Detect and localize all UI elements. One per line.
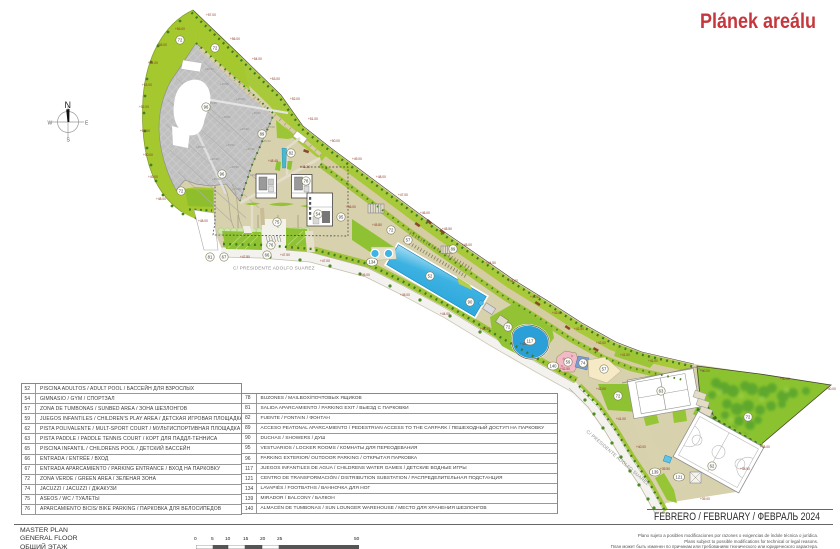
svg-text:67: 67 <box>222 255 227 260</box>
svg-text:63: 63 <box>659 389 664 394</box>
svg-text:+46.00: +46.00 <box>360 273 370 277</box>
svg-text:+41.00: +41.00 <box>616 417 626 421</box>
svg-text:+45.50: +45.50 <box>222 115 231 119</box>
svg-text:134: 134 <box>369 260 377 265</box>
svg-text:S: S <box>67 138 71 144</box>
svg-text:+48.00: +48.00 <box>156 197 166 201</box>
svg-text:+48.20: +48.20 <box>300 165 310 169</box>
svg-text:+45.50: +45.50 <box>220 82 229 86</box>
svg-text:+41.50: +41.50 <box>620 353 630 357</box>
svg-text:+42.50: +42.50 <box>574 327 584 331</box>
svg-text:+44.00: +44.00 <box>440 312 450 316</box>
svg-text:+47.80: +47.80 <box>240 255 250 259</box>
svg-text:+43.50: +43.50 <box>530 295 540 299</box>
svg-text:75: 75 <box>275 220 280 225</box>
svg-text:+51.00: +51.00 <box>308 117 318 121</box>
svg-text:76: 76 <box>269 243 274 248</box>
svg-text:+46.00: +46.00 <box>420 211 430 215</box>
svg-text:+45.50: +45.50 <box>266 125 275 129</box>
svg-text:+48.00: +48.00 <box>198 219 208 223</box>
svg-text:W: W <box>48 121 53 127</box>
svg-text:+53.00: +53.00 <box>142 83 152 87</box>
svg-text:+45.50: +45.50 <box>240 127 249 131</box>
svg-text:+42.00: +42.00 <box>596 341 606 345</box>
svg-text:54: 54 <box>316 212 321 217</box>
svg-text:+49.00: +49.00 <box>148 175 158 179</box>
svg-text:+43.00: +43.00 <box>552 311 562 315</box>
svg-text:59: 59 <box>566 360 571 365</box>
svg-text:+53.00: +53.00 <box>270 77 280 81</box>
svg-text:+42.50: +42.50 <box>560 367 570 371</box>
svg-text:+50.00: +50.00 <box>143 153 153 157</box>
svg-text:57: 57 <box>602 367 607 372</box>
svg-text:117: 117 <box>527 339 534 344</box>
svg-text:72: 72 <box>178 38 183 43</box>
svg-text:N: N <box>65 100 72 110</box>
svg-text:C/ PRESIDENTE ADOLFO SUAREZ: C/ PRESIDENTE ADOLFO SUAREZ <box>233 266 315 271</box>
svg-text:+47.50: +47.50 <box>280 253 290 257</box>
svg-text:95: 95 <box>339 215 344 220</box>
svg-text:66: 66 <box>265 253 270 258</box>
svg-text:96: 96 <box>220 172 225 177</box>
svg-text:+45.50: +45.50 <box>236 97 245 101</box>
svg-text:+39.50: +39.50 <box>660 467 670 471</box>
svg-text:+50.00: +50.00 <box>330 139 340 143</box>
svg-text:81: 81 <box>208 255 213 260</box>
svg-text:72: 72 <box>506 325 511 330</box>
svg-text:57: 57 <box>406 238 411 243</box>
svg-text:+45.50: +45.50 <box>226 143 235 147</box>
svg-text:96: 96 <box>204 105 209 110</box>
svg-text:+41.00: +41.00 <box>648 359 658 363</box>
svg-text:62: 62 <box>710 464 715 469</box>
svg-text:121: 121 <box>676 475 684 480</box>
svg-text:+44.50: +44.50 <box>486 261 496 265</box>
svg-text:+40.00: +40.00 <box>700 369 710 373</box>
svg-text:+39.00: +39.00 <box>700 497 710 501</box>
svg-text:+56.00: +56.00 <box>230 37 240 41</box>
svg-text:+40.00: +40.00 <box>636 445 646 449</box>
svg-text:82: 82 <box>289 151 294 156</box>
svg-text:+44.00: +44.00 <box>508 279 518 283</box>
svg-text:+52.00: +52.00 <box>290 97 300 101</box>
svg-text:+40.00: +40.00 <box>780 377 790 381</box>
svg-text:+42.00: +42.00 <box>596 387 606 391</box>
svg-text:+45.80: +45.80 <box>372 223 382 227</box>
svg-text:72: 72 <box>213 46 218 51</box>
svg-text:52: 52 <box>428 274 433 279</box>
svg-text:+43.50: +43.50 <box>480 327 490 331</box>
svg-text:+38.00: +38.00 <box>760 445 770 449</box>
svg-text:+47.00: +47.00 <box>320 259 330 263</box>
svg-text:+45.00: +45.00 <box>400 293 410 297</box>
svg-text:+45.50: +45.50 <box>210 157 219 161</box>
svg-text:90: 90 <box>468 300 473 305</box>
svg-text:89: 89 <box>451 247 456 252</box>
svg-text:+45.50: +45.50 <box>252 111 261 115</box>
svg-text:+45.00: +45.00 <box>462 243 472 247</box>
svg-text:74: 74 <box>581 361 586 366</box>
svg-text:+45.50: +45.50 <box>246 147 255 151</box>
svg-text:78: 78 <box>304 179 309 184</box>
svg-text:+45.50: +45.50 <box>442 227 452 231</box>
svg-text:72: 72 <box>179 189 184 194</box>
svg-text:+54.00: +54.00 <box>252 57 262 61</box>
svg-text:+49.00: +49.00 <box>352 157 362 161</box>
svg-text:+45.50: +45.50 <box>196 145 205 149</box>
svg-text:+40.00: +40.00 <box>826 387 836 391</box>
svg-text:140: 140 <box>550 364 558 369</box>
svg-text:+51.00: +51.00 <box>140 129 150 133</box>
svg-text:72: 72 <box>616 394 621 399</box>
svg-text:+45.50: +45.50 <box>205 67 214 71</box>
svg-text:139: 139 <box>652 470 660 475</box>
svg-text:+45.50: +45.50 <box>230 165 239 169</box>
svg-text:89: 89 <box>260 132 265 137</box>
svg-text:72: 72 <box>389 228 394 233</box>
svg-text:+54.00: +54.00 <box>148 61 158 65</box>
svg-text:+48.00: +48.00 <box>376 175 386 179</box>
svg-text:+47.00: +47.00 <box>398 193 408 197</box>
svg-text:E: E <box>85 121 89 127</box>
svg-text:+55.00: +55.00 <box>157 43 167 47</box>
svg-text:72: 72 <box>746 415 751 420</box>
svg-text:+38.50: +38.50 <box>740 467 750 471</box>
svg-text:+48.40: +48.40 <box>268 159 278 163</box>
svg-text:+46.00: +46.00 <box>346 205 356 209</box>
svg-text:+52.00: +52.00 <box>139 105 149 109</box>
